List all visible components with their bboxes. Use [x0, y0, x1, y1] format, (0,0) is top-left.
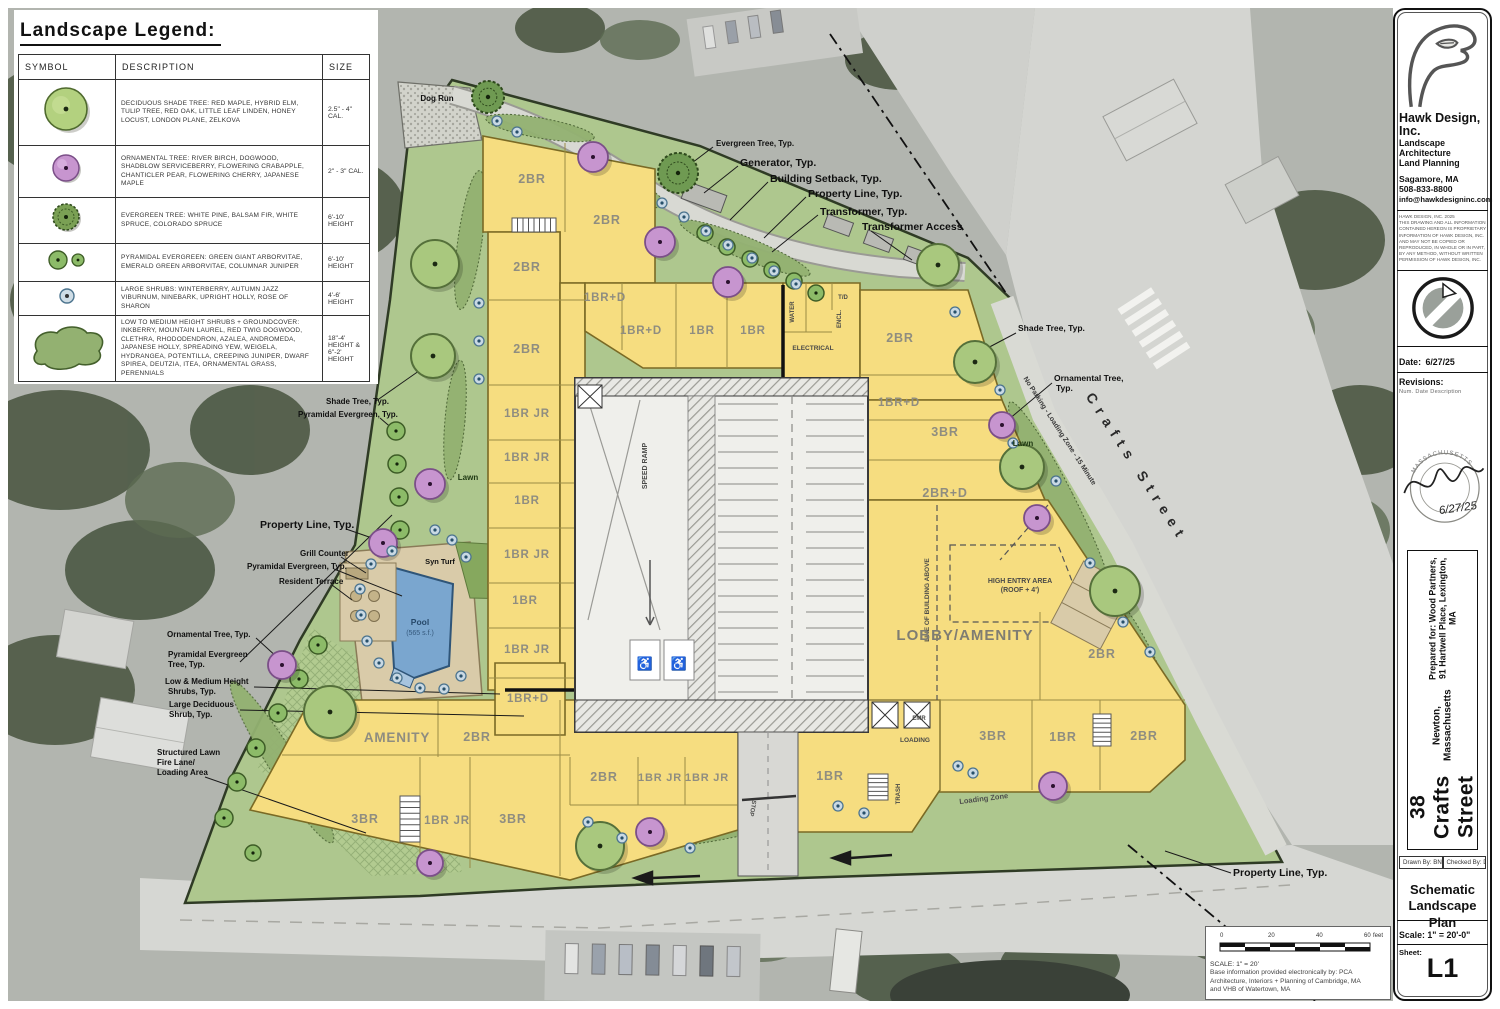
svg-text:Tree, Typ.: Tree, Typ. — [168, 660, 205, 669]
date-label: Date: — [1399, 357, 1421, 367]
legend-row-size: 6'-10' HEIGHT — [323, 244, 370, 282]
svg-text:Syn Turf: Syn Turf — [425, 557, 455, 566]
svg-text:Low & Medium Height: Low & Medium Height — [165, 677, 249, 686]
base-info-note-3: and VHB of Watertown, MA — [1210, 986, 1386, 995]
svg-text:40: 40 — [1316, 933, 1323, 939]
svg-text:2BR: 2BR — [886, 331, 913, 345]
svg-text:1BR JR: 1BR JR — [504, 408, 550, 420]
graphic-scale-bar: 0 20 40 60 feet — [1210, 929, 1386, 955]
plan-sheet: ♿ ♿ — [0, 0, 1500, 1009]
revisions-label: Revisions: — [1399, 377, 1486, 387]
company-service-2: Land Planning — [1399, 158, 1486, 168]
legend-row-desc: EVERGREEN TREE: WHITE PINE, BALSAM FIR, … — [116, 198, 323, 244]
legend-row-desc: LOW TO MEDIUM HEIGHT SHRUBS + GROUNDCOVE… — [116, 316, 323, 382]
svg-text:1BR+D: 1BR+D — [620, 325, 662, 337]
svg-text:3BR: 3BR — [931, 425, 958, 439]
svg-text:1BR JR: 1BR JR — [685, 772, 729, 784]
legend-header-description: DESCRIPTION — [116, 55, 323, 80]
svg-text:2BR: 2BR — [518, 172, 545, 186]
svg-text:T/D: T/D — [838, 295, 848, 301]
svg-text:Shade Tree, Typ.: Shade Tree, Typ. — [1018, 323, 1085, 333]
legend-row-size: 18"-4' HEIGHT & 6"-2' HEIGHT — [323, 316, 370, 382]
svg-text:1BR JR: 1BR JR — [504, 452, 550, 464]
company-phone: 508-833-8800 — [1399, 184, 1486, 195]
svg-text:♿: ♿ — [637, 656, 653, 671]
svg-text:Evergreen Tree, Typ.: Evergreen Tree, Typ. — [716, 139, 794, 148]
deciduous-shade-tree-icon — [19, 80, 116, 146]
svg-text:Fire Lane/: Fire Lane/ — [157, 758, 196, 767]
svg-text:Pool: Pool — [411, 617, 429, 627]
svg-text:Pyramidal Evergreen, Typ.: Pyramidal Evergreen, Typ. — [247, 562, 347, 571]
legend-row-size: 6'-10' HEIGHT — [323, 198, 370, 244]
svg-text:Shrub, Typ.: Shrub, Typ. — [169, 710, 212, 719]
svg-text:ELECTRICAL: ELECTRICAL — [792, 345, 833, 352]
svg-text:0: 0 — [1220, 933, 1224, 939]
svg-text:60: 60 — [1364, 933, 1371, 939]
svg-text:2BR+D: 2BR+D — [922, 486, 967, 500]
landscape-legend: Landscape Legend: SYMBOL DESCRIPTION SIZ… — [14, 10, 378, 384]
svg-text:Lawn: Lawn — [458, 473, 479, 482]
legend-row-size: 2.5" - 4" CAL. — [323, 80, 370, 146]
company-email: info@hawkdesigninc.com — [1399, 195, 1486, 204]
svg-text:Property Line, Typ.: Property Line, Typ. — [808, 188, 902, 200]
evergreen-tree-icon — [19, 198, 116, 244]
title-block: Hawk Design, Inc. Landscape Architecture… — [1393, 8, 1492, 1001]
svg-text:2BR: 2BR — [463, 730, 490, 744]
svg-text:1BR+D: 1BR+D — [878, 397, 920, 409]
svg-text:Resident Terrace: Resident Terrace — [279, 577, 344, 586]
scale-bar-box: 0 20 40 60 feet SCALE: 1" = 20' Base inf… — [1205, 926, 1391, 1000]
svg-text:Transformer, Typ.: Transformer, Typ. — [820, 206, 907, 218]
legend-row-desc: LARGE SHRUBS: WINTERBERRY, AUTUMN JAZZ V… — [116, 282, 323, 316]
svg-text:3BR: 3BR — [979, 729, 1006, 743]
checked-by: Checked By: DH — [1443, 856, 1487, 869]
svg-text:Building Setback, Typ.: Building Setback, Typ. — [770, 173, 882, 185]
drawn-by: Drawn By: BNL — [1399, 856, 1443, 869]
stamp-date: 6/27/25 — [1438, 500, 1478, 517]
company-service-1: Landscape Architecture — [1399, 138, 1486, 158]
svg-text:LOADING: LOADING — [900, 737, 930, 744]
svg-text:AMENITY: AMENITY — [364, 730, 430, 745]
svg-text:2BR: 2BR — [513, 342, 540, 356]
drawn-checked-row: Drawn By: BNL Checked By: DH — [1399, 856, 1486, 869]
large-shrub-icon — [19, 282, 116, 316]
svg-text:Ornamental Tree,: Ornamental Tree, — [1054, 373, 1123, 383]
revisions-block: Revisions: Num. Date Description — [1399, 377, 1486, 395]
scale-caption: SCALE: 1" = 20' — [1210, 961, 1386, 968]
svg-text:Loading Area: Loading Area — [157, 768, 208, 777]
base-info-note-2: Architecture, Interiors + Planning of Ca… — [1210, 978, 1386, 987]
project-title-block: 38 Crafts Street Newton, Massachusetts P… — [1399, 550, 1486, 850]
svg-text:Shrubs, Typ.: Shrubs, Typ. — [168, 687, 216, 696]
scale-value: Scale: 1" = 20'-0" — [1399, 930, 1470, 940]
svg-text:WATER: WATER — [790, 301, 796, 323]
svg-text:Dog Run: Dog Run — [420, 94, 453, 103]
svg-text:3BR: 3BR — [499, 812, 526, 826]
entry-drive — [738, 732, 798, 876]
svg-text:1BR+D: 1BR+D — [584, 292, 626, 304]
svg-text:Property Line, Typ.: Property Line, Typ. — [260, 519, 354, 531]
legend-row-desc: ORNAMENTAL TREE: RIVER BIRCH, DOGWOOD, S… — [116, 146, 323, 198]
ornamental-tree-icon — [19, 146, 116, 198]
svg-text:1BR: 1BR — [689, 325, 714, 337]
svg-text:Shade Tree, Typ.: Shade Tree, Typ. — [326, 397, 389, 406]
svg-text:2BR: 2BR — [1088, 647, 1115, 661]
svg-text:Transformer Access: Transformer Access — [862, 221, 963, 233]
svg-text:1BR JR: 1BR JR — [504, 644, 550, 656]
svg-text:2BR: 2BR — [590, 770, 617, 784]
legend-row-desc: PYRAMIDAL EVERGREEN: GREEN GIANT ARBORVI… — [116, 244, 323, 282]
sheet-number: L1 — [1399, 953, 1486, 984]
svg-text:SPEED RAMP: SPEED RAMP — [642, 443, 649, 490]
svg-text:1BR: 1BR — [514, 495, 539, 507]
svg-text:Large Deciduous: Large Deciduous — [169, 700, 234, 709]
prepared-for: Prepared for: Wood Partners, 91 Hartwell… — [1428, 551, 1458, 686]
svg-text:1BR: 1BR — [816, 769, 843, 783]
svg-text:EMR: EMR — [912, 716, 926, 722]
legend-title: Landscape Legend: — [20, 20, 221, 46]
pe-stamp: MASSACHUSETTS 6/27/25 — [1399, 428, 1486, 546]
legend-table: SYMBOL DESCRIPTION SIZE DECIDUOUS SHADE … — [18, 54, 370, 382]
date-value: 6/27/25 — [1425, 357, 1454, 367]
legend-header-size: SIZE — [323, 55, 370, 80]
copyright-note: HAWK DESIGN, INC. 2025 THIS DRAWING AND … — [1399, 214, 1486, 264]
svg-text:HIGH ENTRY AREA: HIGH ENTRY AREA — [988, 578, 1052, 585]
svg-text:2BR: 2BR — [1130, 729, 1157, 743]
legend-row-size: 2" - 3" CAL. — [323, 146, 370, 198]
svg-text:feet: feet — [1373, 933, 1383, 939]
legend-row-desc: DECIDUOUS SHADE TREE: RED MAPLE, HYBRID … — [116, 80, 323, 146]
svg-text:Lawn: Lawn — [1013, 439, 1034, 448]
legend-row-size: 4'-6' HEIGHT — [323, 282, 370, 316]
base-info-note-1: Base information provided electronically… — [1210, 969, 1386, 978]
pyramidal-evergreen-icon — [19, 244, 116, 282]
svg-text:1BR JR: 1BR JR — [504, 549, 550, 561]
svg-text:TRASH: TRASH — [896, 784, 902, 805]
svg-text:1BR: 1BR — [1049, 730, 1076, 744]
hawk-logo — [1399, 18, 1486, 112]
project-city: Newton, Massachusetts — [1432, 690, 1454, 762]
svg-text:Pyramidal Evergreen, Typ.: Pyramidal Evergreen, Typ. — [298, 410, 398, 419]
company-city: Sagamore, MA — [1399, 174, 1486, 185]
sheet-title: Schematic Landscape Plan — [1399, 882, 1486, 931]
svg-text:ENCL.: ENCL. — [837, 310, 843, 328]
company-info: Hawk Design, Inc. Landscape Architecture… — [1399, 112, 1486, 205]
company-name: Hawk Design, Inc. — [1399, 112, 1486, 138]
svg-text:Generator, Typ.: Generator, Typ. — [740, 157, 816, 169]
svg-text:1BR+D: 1BR+D — [507, 693, 549, 705]
svg-text:1BR JR: 1BR JR — [424, 815, 470, 827]
svg-text:Grill Counter: Grill Counter — [300, 549, 349, 558]
shrub-mass-icon — [19, 316, 116, 382]
scale-row: Scale: 1" = 20'-0" — [1399, 925, 1486, 943]
svg-text:♿: ♿ — [671, 656, 687, 671]
svg-text:Property Line, Typ.: Property Line, Typ. — [1233, 867, 1327, 879]
svg-text:Ornamental Tree, Typ.: Ornamental Tree, Typ. — [167, 630, 250, 639]
svg-text:1BR JR: 1BR JR — [638, 772, 682, 784]
svg-text:LOBBY/AMENITY: LOBBY/AMENITY — [896, 627, 1033, 644]
svg-text:2BR: 2BR — [513, 260, 540, 274]
revisions-columns: Num. Date Description — [1399, 389, 1486, 395]
svg-text:Typ.: Typ. — [1056, 383, 1073, 393]
parked-cars — [544, 930, 760, 1001]
svg-text:2BR: 2BR — [593, 213, 620, 227]
sheet-number-block: Sheet: L1 — [1399, 948, 1486, 984]
svg-text:3BR: 3BR — [351, 812, 378, 826]
project-title: 38 Crafts Street — [1407, 765, 1479, 849]
date-row: Date: 6/27/25 — [1399, 352, 1486, 370]
svg-text:20: 20 — [1268, 933, 1275, 939]
svg-text:Structured Lawn: Structured Lawn — [157, 748, 220, 757]
svg-text:1BR: 1BR — [740, 325, 765, 337]
svg-text:(565 s.f.): (565 s.f.) — [406, 630, 434, 637]
svg-text:Pyramidal Evergreen: Pyramidal Evergreen — [168, 650, 248, 659]
legend-header-symbol: SYMBOL — [19, 55, 116, 80]
svg-text:1BR: 1BR — [512, 595, 537, 607]
svg-text:(ROOF + 4'): (ROOF + 4') — [1001, 587, 1039, 594]
company-emblem — [1399, 274, 1486, 344]
